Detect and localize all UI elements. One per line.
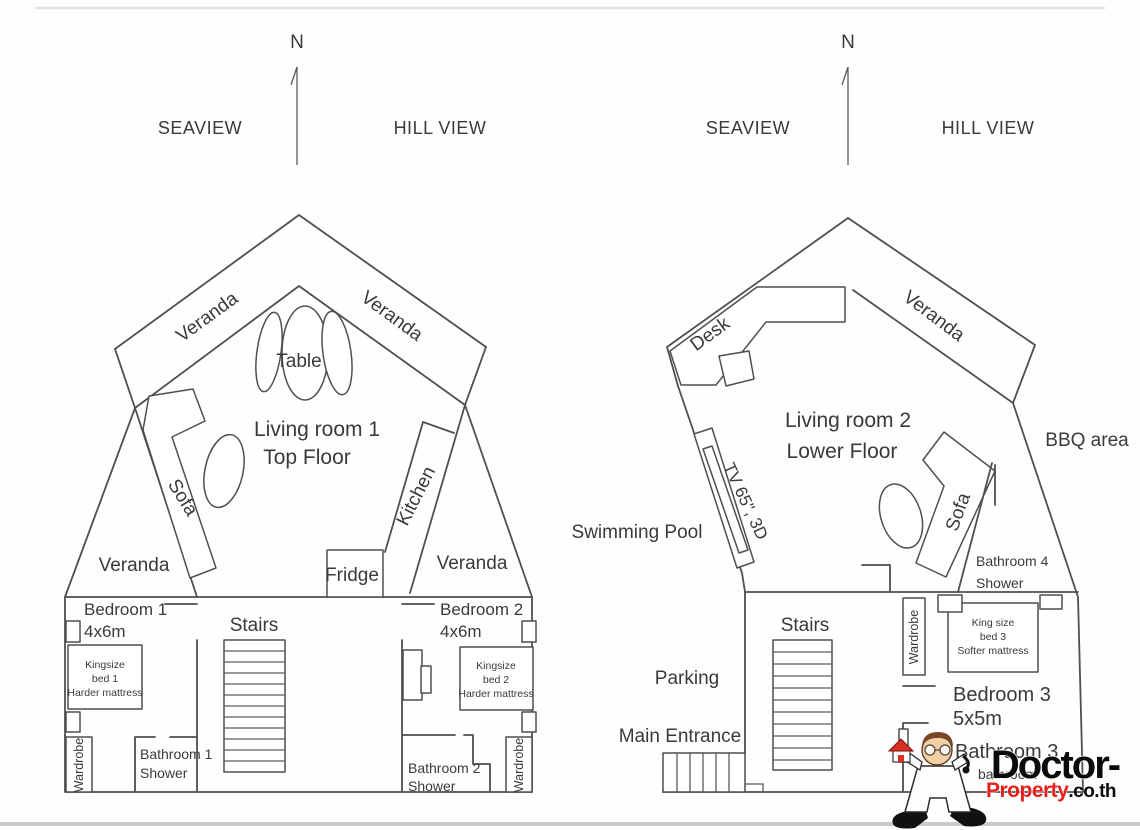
brand-suffix-text: .co.th xyxy=(1068,781,1116,802)
wardrobe2-label: Wardrobe xyxy=(512,738,526,792)
hillview-label-right: HILL VIEW xyxy=(942,118,1035,138)
swimming-pool-label: Swimming Pool xyxy=(572,522,703,543)
desk-chair xyxy=(719,351,754,386)
doctor-glasses-left xyxy=(925,745,935,755)
sofa1-side-table xyxy=(198,431,251,511)
sofa2-side-table xyxy=(872,478,930,553)
north-arrow-left xyxy=(291,67,297,165)
fridge-label: Fridge xyxy=(325,565,379,586)
stairs-box-lower-floor xyxy=(773,640,832,770)
bedroom2-name-label: Bedroom 2 xyxy=(440,600,523,619)
bedroom3-size-label: 5x5m xyxy=(953,708,1002,730)
seaview-label-left: SEAVIEW xyxy=(158,118,242,138)
veranda-roof-right-label: Veranda xyxy=(357,287,427,346)
bedroom2-window-top xyxy=(522,621,536,642)
lower-floor-label: Lower Floor xyxy=(787,440,898,463)
wardrobe1-label: Wardrobe xyxy=(72,738,86,792)
bed2-line2: bed 2 xyxy=(483,674,509,686)
bedroom1-window-bottom xyxy=(66,712,80,732)
wardrobe3-label: Wardrobe xyxy=(907,610,921,664)
bedroom1-walls xyxy=(165,604,197,792)
bathroom1-label: Bathroom 1 xyxy=(140,746,213,762)
brand-property-red: Property xyxy=(986,779,1069,802)
bedroom1-name-label: Bedroom 1 xyxy=(84,600,167,619)
bed1-line2: bed 1 xyxy=(92,673,118,685)
bottom-step-nub xyxy=(745,784,763,792)
bed2-line1: Kingsize xyxy=(476,660,516,672)
bed3-line1: King size xyxy=(972,617,1015,629)
bed1-line3: Harder mattress xyxy=(67,687,142,699)
bathroom2-label: Bathroom 2 xyxy=(408,760,481,776)
veranda-wing-right-label: Veranda xyxy=(437,553,508,574)
bedroom2-cabinet xyxy=(403,650,422,700)
bed2-line3: Harder mattress xyxy=(458,688,533,700)
bedroom3-door-left xyxy=(938,595,962,612)
floorplan-image: N SEAVIEW HILL VIEW xyxy=(0,0,1140,830)
bathroom4-shower-label: Shower xyxy=(976,575,1024,591)
bed3-line3: Softer mattress xyxy=(957,645,1028,657)
doctor-stethoscope-end xyxy=(963,767,970,774)
main-entrance-label: Main Entrance xyxy=(619,726,742,747)
top-floor-plan: N SEAVIEW HILL VIEW xyxy=(65,32,536,794)
brand-property-text: Property.co.th xyxy=(986,779,1116,802)
north-arrow-right xyxy=(842,67,848,165)
house-icon-door xyxy=(898,755,904,762)
bedroom2-window-bottom xyxy=(522,712,536,732)
floorplan-svg: N SEAVIEW HILL VIEW xyxy=(0,0,1140,830)
bedroom2-cabinet-small xyxy=(421,666,431,693)
entrance-steps-box xyxy=(663,753,745,792)
bed3-line2: bed 3 xyxy=(980,631,1006,643)
bedroom1-size-label: 4x6m xyxy=(84,622,126,641)
bathroom2-shower-label: Shower xyxy=(408,778,456,794)
sofa-corner-wall xyxy=(862,565,890,592)
bedroom3-name-label: Bedroom 3 xyxy=(953,684,1051,706)
veranda-lower-label: Veranda xyxy=(899,287,969,347)
house-icon-roof xyxy=(889,739,913,751)
bathroom1-shower-label: Shower xyxy=(140,765,188,781)
top-floor-label: Top Floor xyxy=(263,446,351,469)
compass-north-label-right: N xyxy=(841,32,855,53)
table-label: Table xyxy=(276,351,321,372)
living-room-1-label: Living room 1 xyxy=(254,418,380,441)
bedroom1-window-top xyxy=(66,621,80,642)
bbq-area-label: BBQ area xyxy=(1045,430,1129,451)
seaview-label-right: SEAVIEW xyxy=(706,118,790,138)
stairs-label-lower-floor: Stairs xyxy=(781,615,830,636)
bedroom2-size-label: 4x6m xyxy=(440,622,482,641)
doctor-coat xyxy=(905,766,971,812)
lower-floor-plan: N SEAVIEW HILL VIEW xyxy=(572,32,1130,792)
bed1-line1: Kingsize xyxy=(85,659,125,671)
hillview-label-left: HILL VIEW xyxy=(394,118,487,138)
veranda-roof-left-label: Veranda xyxy=(172,288,242,347)
stairs-label-top-floor: Stairs xyxy=(230,615,279,636)
bathroom4-label: Bathroom 4 xyxy=(976,553,1049,569)
compass-north-label-left: N xyxy=(290,32,304,53)
watermark-logo: Doctor- Property.co.th xyxy=(889,732,1120,829)
bedroom3-door-right xyxy=(1040,595,1062,609)
doctor-glasses-right xyxy=(940,745,950,755)
kitchen-label: Kitchen xyxy=(393,463,440,529)
living-room-2-label: Living room 2 xyxy=(785,409,911,432)
parking-label: Parking xyxy=(655,668,719,689)
veranda-wing-left-label: Veranda xyxy=(99,555,170,576)
